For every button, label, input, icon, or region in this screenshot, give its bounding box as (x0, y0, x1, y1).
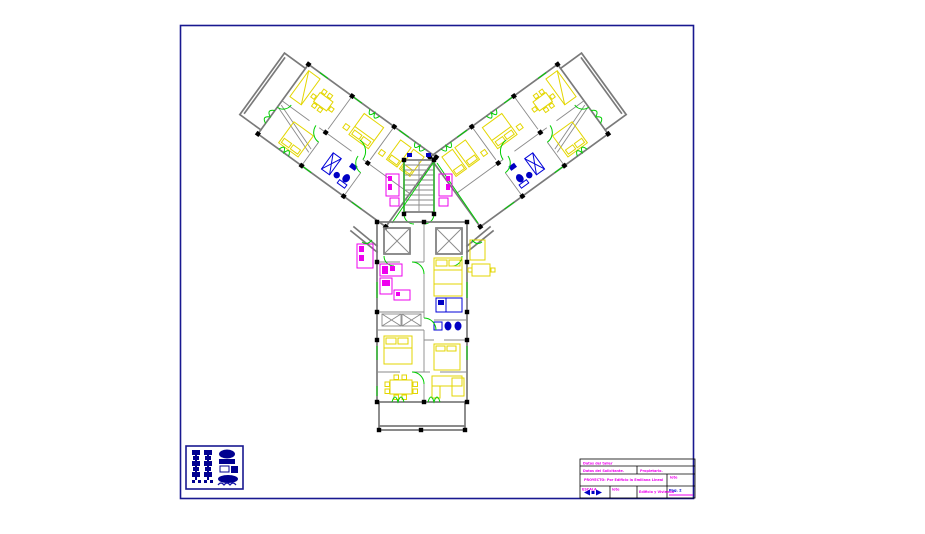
title-row1: Datos del taller (583, 462, 613, 466)
core-bath-left (386, 174, 399, 206)
kitchen-fixtures (380, 264, 410, 300)
junction-dining-right (468, 240, 495, 276)
title-row3b: lote (670, 476, 678, 480)
floor-plan (236, 47, 631, 432)
dining-set (385, 375, 418, 400)
cad-drawing-sheet: Datos del taller Datos del Solicitante. … (0, 0, 925, 534)
bed-left (384, 336, 412, 364)
legend-box (186, 446, 243, 489)
furniture-glyphs-icon (192, 450, 238, 486)
title-block: Datos del taller Datos del Solicitante. … (580, 459, 695, 498)
closet-hatch (382, 314, 421, 326)
sofa-set (432, 376, 464, 398)
title-row2a: Datos del Solicitante. (583, 469, 624, 473)
wing-bottom (351, 220, 495, 432)
wing-left (236, 47, 440, 230)
blue-bed (436, 298, 462, 312)
bed-right (434, 344, 460, 370)
wing-right (427, 47, 631, 230)
floor-plan-canvas: Datos del taller Datos del Solicitante. … (0, 0, 925, 534)
project-title: PROYECTO: Por Edificio la Emiliana Linea… (584, 478, 663, 482)
title-row2b: Propietario. (640, 469, 663, 473)
wc-fixtures (434, 322, 462, 331)
title-row4b: lote (612, 488, 620, 492)
page-number: Pag. 2 (669, 489, 682, 493)
balcony-rail (379, 402, 465, 430)
